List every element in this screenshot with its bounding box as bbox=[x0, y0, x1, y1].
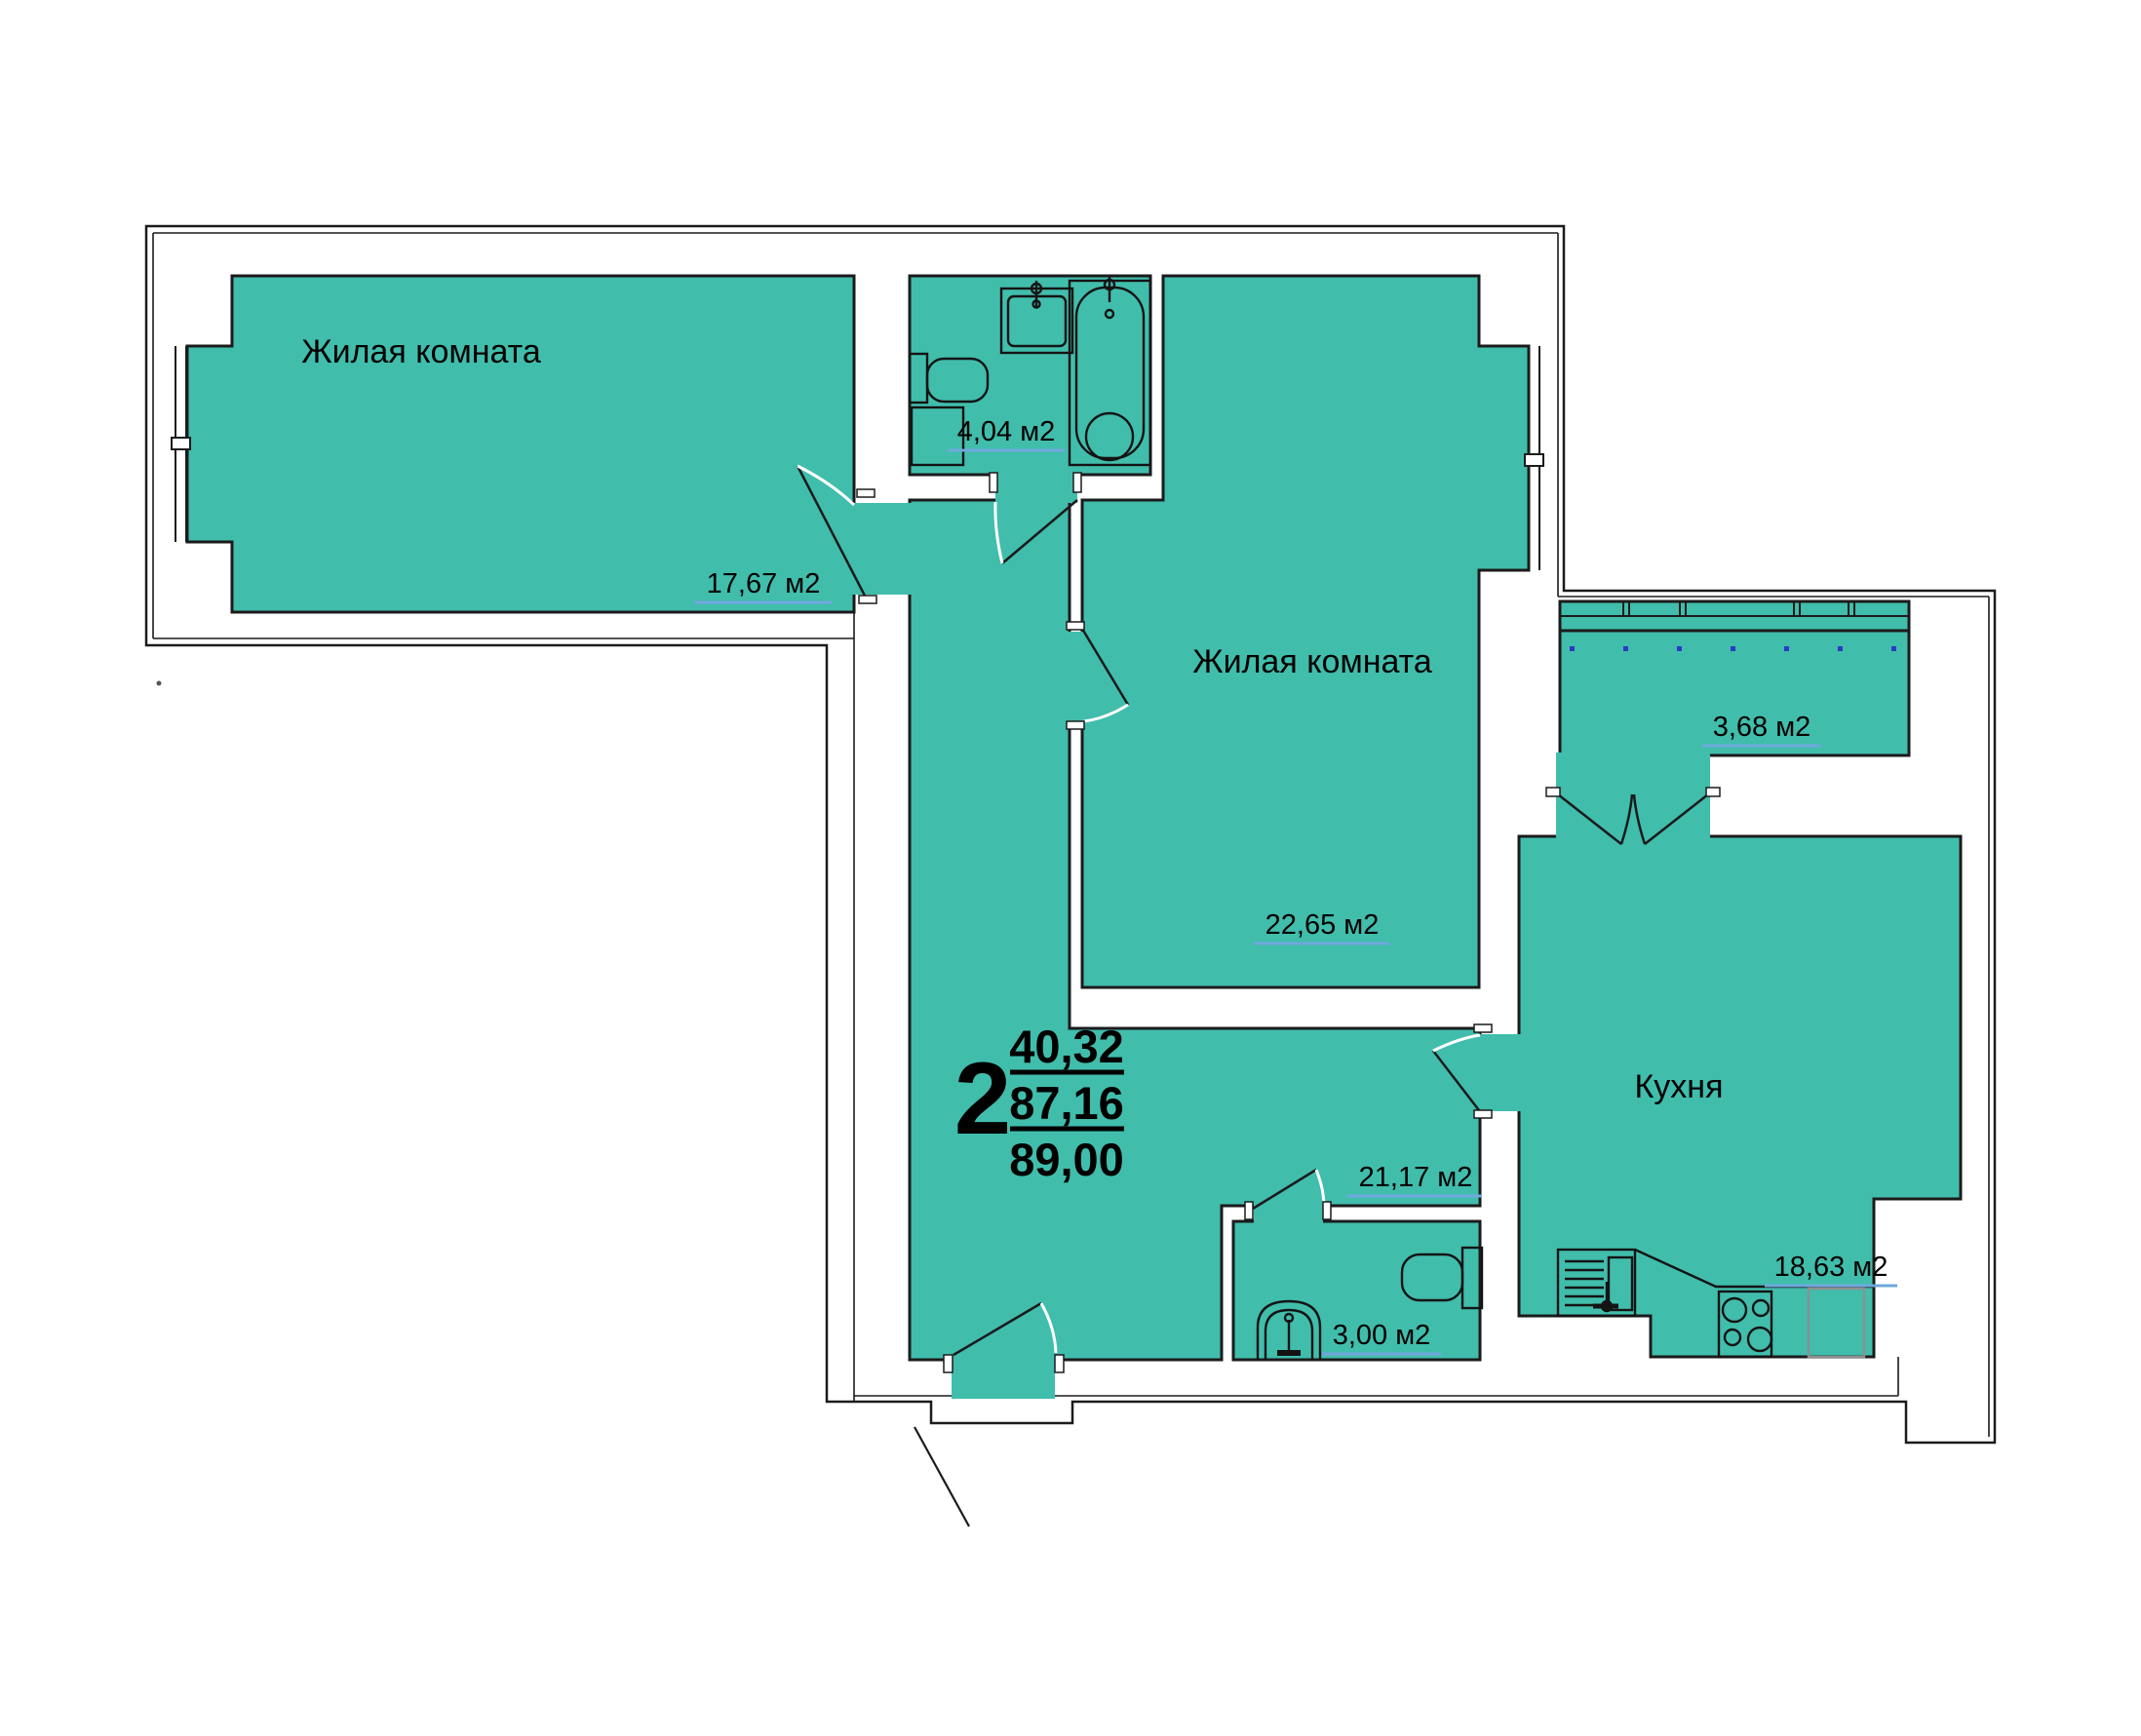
opening-entrance bbox=[952, 1357, 1055, 1399]
floor-plan-drawing: Жилая комната Жилая комната Кухня 17,67 … bbox=[0, 0, 2141, 1736]
label-bathroom-area: 4,04 м2 bbox=[957, 416, 1056, 447]
opening-wc bbox=[1254, 1203, 1323, 1224]
label-kitchen-area: 18,63 м2 bbox=[1774, 1252, 1888, 1283]
summary-apartment-area: 87,16 bbox=[1009, 1077, 1124, 1129]
label-hallway-area: 21,17 м2 bbox=[1359, 1162, 1473, 1193]
summary-living-area: 40,32 bbox=[1009, 1021, 1124, 1072]
label-living-room-2-name: Жилая комната bbox=[1192, 643, 1432, 680]
print-speck bbox=[157, 681, 162, 686]
summary-total-area: 89,00 bbox=[1009, 1134, 1124, 1185]
opening-living-room-2 bbox=[1067, 632, 1085, 721]
opening-living-room-1 bbox=[851, 503, 913, 595]
summary-rooms-count: 2 bbox=[954, 1042, 1011, 1156]
label-wc-area: 3,00 м2 bbox=[1333, 1320, 1431, 1351]
label-loggia-area: 3,68 м2 bbox=[1713, 712, 1811, 743]
opening-bathroom bbox=[995, 472, 1077, 503]
entrance-step-line bbox=[915, 1427, 969, 1526]
label-living-room-2-area: 22,65 м2 bbox=[1265, 909, 1380, 941]
label-kitchen-name: Кухня bbox=[1635, 1068, 1724, 1105]
room-living-room-1 bbox=[187, 276, 854, 612]
label-living-room-1-name: Жилая комната bbox=[301, 333, 541, 370]
floor-plan-page: Жилая комната Жилая комната Кухня 17,67 … bbox=[0, 0, 2141, 1736]
label-living-room-1-area: 17,67 м2 bbox=[707, 568, 821, 599]
opening-kitchen bbox=[1477, 1034, 1522, 1111]
